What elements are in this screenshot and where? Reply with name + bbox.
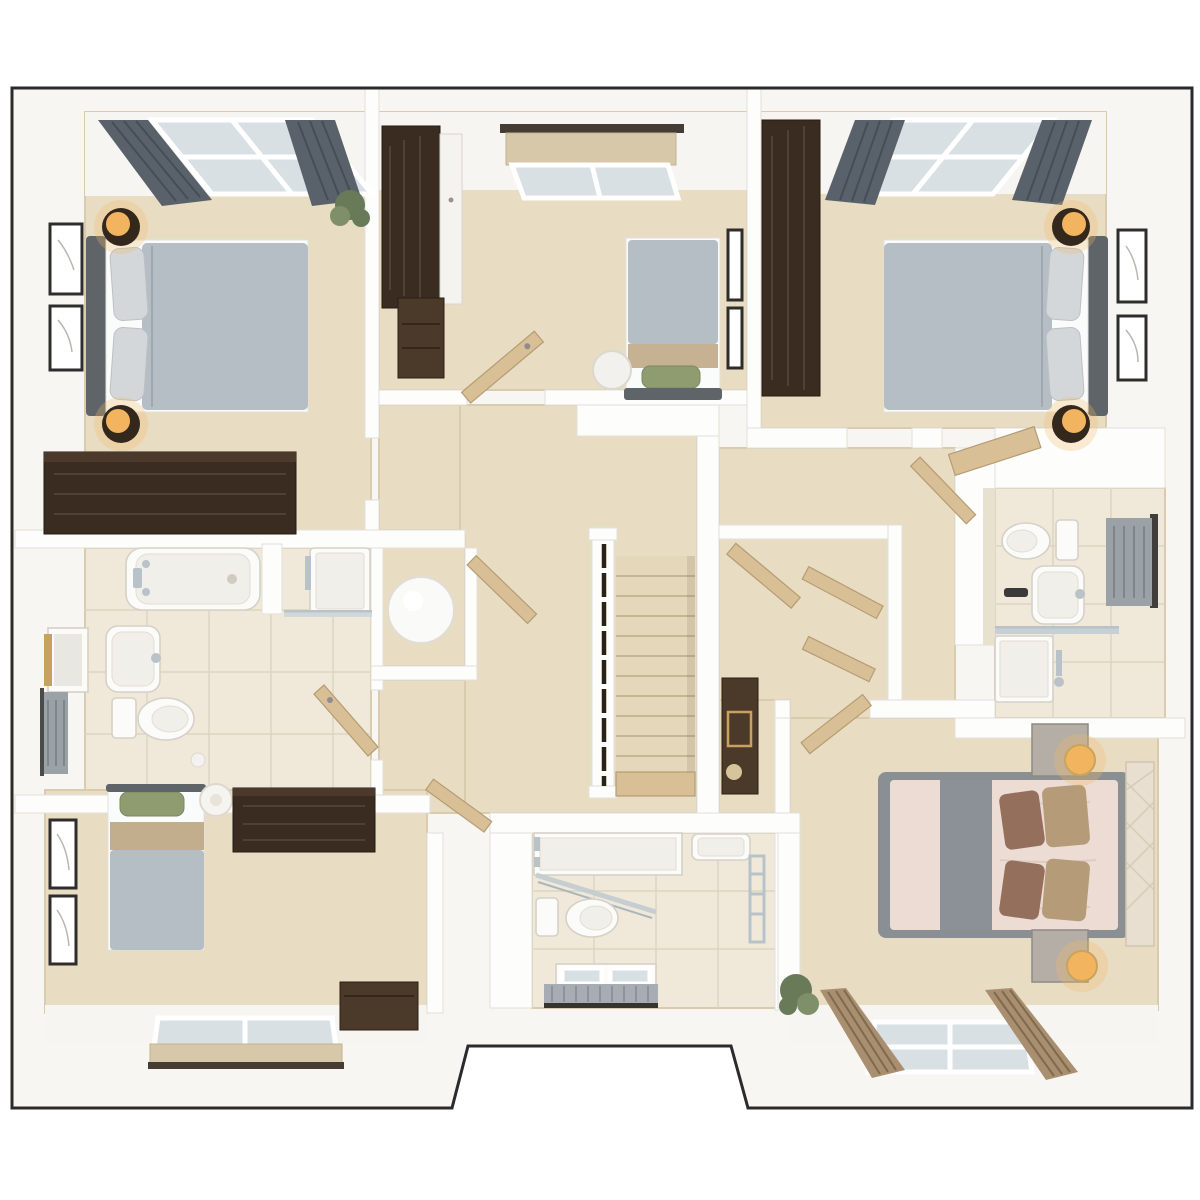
bedroom5-wall-art-2	[50, 896, 76, 964]
bathroom-door-handle	[327, 697, 333, 703]
bedroom1-lamp-top	[94, 200, 148, 254]
bedroom3-wall-art-1	[728, 230, 742, 300]
wall-dressing-right	[888, 525, 902, 700]
showerroom-hinge-2	[534, 857, 540, 867]
toilet-brush	[191, 753, 205, 767]
bedroom3-drawer-unit	[398, 298, 444, 378]
wall-dressing-top	[719, 525, 890, 539]
bedroom2-lamp-top	[1044, 200, 1098, 254]
stairs-newel-bottom	[589, 786, 617, 798]
wall-stairwell-guard	[577, 405, 719, 436]
bedroom1-headboard	[86, 236, 106, 416]
bedroom2-wall-art-1	[1118, 230, 1146, 302]
bedroom5-desk-edge	[233, 788, 375, 796]
bathtub-drain	[227, 574, 237, 584]
stairs-treads	[616, 556, 695, 772]
showerroom-window-radiator	[544, 964, 658, 1008]
bedroom3-wardrobe	[382, 126, 462, 308]
bedroom4-pillow-brown-2	[998, 859, 1045, 920]
bedroom3-window-blind	[506, 133, 676, 165]
wall-showerroom-left	[490, 833, 532, 1008]
bedroom3-bed-throw	[628, 344, 718, 368]
bedroom1-lamp-bottom	[94, 397, 148, 451]
bedroom2-lamp-bottom	[1044, 397, 1098, 451]
bedroom1-wall-art-1	[50, 224, 82, 294]
bedroom3-duvet	[628, 240, 718, 344]
console-table	[722, 678, 758, 794]
wall-bedroom5-right	[427, 833, 443, 1013]
wall-bedroom4-top	[870, 700, 995, 718]
shower-glass-screen	[284, 612, 372, 617]
wall-showerroom-top	[490, 813, 800, 833]
ensuite-shower-valve	[1056, 650, 1062, 676]
bedroom4-headboard	[1126, 762, 1154, 946]
mirror-face	[54, 634, 82, 686]
wall-bedroom1-right-upper	[365, 88, 379, 438]
stairs-winder	[616, 772, 695, 796]
wall-stairs-right	[697, 436, 719, 813]
bedroom4-pillow-tan-2	[1041, 858, 1090, 922]
bedroom2-pillow-1	[1046, 247, 1085, 321]
wall-bedroom3-right	[747, 88, 761, 443]
bedroom5-green-pillow	[120, 792, 184, 816]
bedroom2-pillow-2	[1046, 327, 1085, 401]
bedroom3-single-bed	[624, 238, 722, 400]
bedroom1-dresser-top-edge	[44, 452, 296, 462]
bedroom2-headboard	[1088, 236, 1108, 416]
bedroom5-chest	[340, 982, 418, 1030]
ensuite-shower-glass	[995, 628, 1119, 634]
bath-divider-wall	[262, 544, 282, 614]
bedroom4-bed	[878, 762, 1154, 946]
bedroom1-pillow-2	[110, 327, 149, 401]
bedroom3-pouf	[593, 351, 631, 389]
ensuite-wall-tile-face	[983, 488, 995, 645]
bedroom1-pillow-1	[110, 247, 149, 321]
vestibule-floor	[379, 405, 467, 530]
towel-rail-frame	[40, 688, 44, 776]
showerroom-toilet	[536, 898, 618, 937]
stairs-newel-top	[589, 528, 617, 540]
decor-sphere	[388, 577, 454, 643]
bedroom3-headboard	[624, 388, 722, 400]
bedroom1-dresser	[44, 452, 296, 534]
showerroom-basin	[692, 834, 750, 860]
bedroom5-wall-art-1	[50, 820, 76, 888]
bedroom3-window-pelmet	[500, 124, 684, 133]
bedroom1-bed	[86, 236, 308, 416]
ensuite-shower-rail	[995, 626, 1119, 629]
ensuite-towel-rail	[1106, 514, 1158, 608]
wall-cupboard-bottom	[371, 666, 477, 680]
toilet	[112, 698, 194, 740]
bedroom5-duvet	[110, 850, 204, 950]
bedroom4-runner	[940, 780, 992, 930]
bedroom4-pillow-brown-1	[998, 789, 1045, 850]
bedroom3-wardrobe-handle	[449, 198, 454, 203]
ensuite-toilet	[1002, 520, 1078, 560]
bedroom2-wall-art-2	[1118, 316, 1146, 380]
bedroom1-wall-art-2	[50, 306, 82, 370]
floor-plan-image	[0, 0, 1200, 1200]
sphere-highlight	[403, 591, 423, 611]
bedroom5-blind-bar	[148, 1062, 344, 1069]
bedroom2-wardrobe-strip	[762, 120, 820, 396]
mirror-cabinet	[44, 628, 88, 692]
bedroom3-wall-art-2	[728, 308, 742, 368]
washbasin	[106, 626, 161, 692]
bedroom1-duvet	[142, 243, 308, 410]
floor-plan-svg	[0, 0, 1200, 1200]
showerroom-hinge-1	[534, 837, 540, 851]
ensuite-basin-handle	[1004, 588, 1028, 597]
radiator-base	[544, 1003, 658, 1008]
console-vase	[726, 764, 742, 780]
wall-bedroom2-bottom-left	[747, 428, 847, 448]
bedroom3-green-pillow	[642, 366, 700, 388]
ensuite-shower-head	[1054, 677, 1064, 687]
bedroom2-bed	[884, 236, 1108, 416]
wall-bedroom4-top-stub	[775, 700, 790, 718]
bathtub	[126, 548, 260, 610]
wall-bedroom2-bottom-mid	[912, 428, 942, 448]
bedroom5-headboard	[106, 784, 206, 792]
bedroom5-single-bed	[106, 784, 206, 950]
wood-shelf-strip	[44, 634, 52, 686]
bedroom5-bed-throw	[110, 822, 204, 850]
basin-tap	[151, 653, 161, 663]
stairs-side-shadow	[687, 556, 695, 772]
bedroom5-desk	[233, 788, 375, 852]
towel-rail	[40, 688, 68, 776]
ensuite-basin-tap	[1075, 589, 1085, 599]
shower-valve	[305, 556, 311, 590]
bedroom5-pendant-light	[200, 784, 232, 816]
bedroom2-duvet	[884, 243, 1052, 410]
staircase	[589, 528, 695, 798]
bedroom4-pillow-tan-1	[1041, 784, 1090, 848]
wall-bedroom3-bottom-left	[379, 390, 467, 405]
shower-screen-rail	[284, 610, 372, 613]
bedroom3-wardrobe-doors	[440, 134, 462, 304]
